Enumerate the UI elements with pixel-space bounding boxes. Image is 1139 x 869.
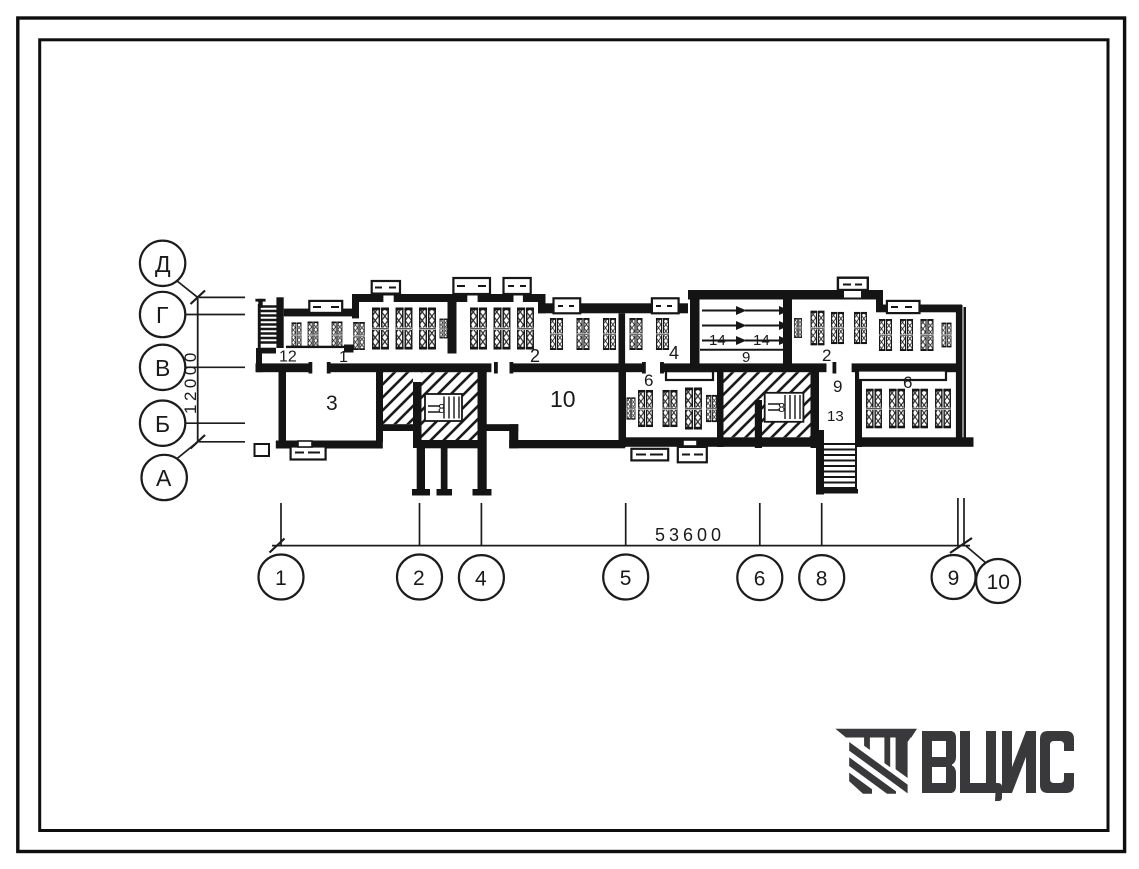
svg-text:4: 4 [475,568,487,591]
svg-text:12000: 12000 [181,349,200,414]
svg-text:9: 9 [742,349,750,366]
svg-text:53600: 53600 [655,525,725,545]
svg-text:2: 2 [822,346,831,365]
svg-text:8: 8 [816,568,828,591]
svg-text:10: 10 [550,386,576,412]
svg-text:14: 14 [709,332,726,349]
svg-text:9: 9 [948,567,960,590]
svg-text:5: 5 [620,567,632,590]
svg-text:9: 9 [833,377,842,396]
svg-text:Г: Г [156,302,169,328]
svg-text:8: 8 [438,401,445,416]
svg-text:6: 6 [644,371,653,390]
svg-text:12: 12 [279,349,297,366]
svg-text:Д: Д [155,251,171,277]
svg-text:2: 2 [413,567,425,590]
svg-text:13: 13 [827,408,844,425]
svg-text:Б: Б [155,411,170,437]
svg-text:10: 10 [987,571,1010,594]
svg-text:1: 1 [339,349,348,366]
svg-text:6: 6 [903,373,912,392]
svg-text:А: А [156,465,172,491]
svg-text:1: 1 [275,567,287,590]
svg-text:8: 8 [778,400,785,415]
svg-text:2: 2 [530,346,540,366]
svg-text:6: 6 [754,568,766,591]
svg-text:В: В [155,355,170,381]
svg-text:14: 14 [753,332,770,349]
svg-text:3: 3 [326,392,338,415]
svg-text:4: 4 [669,343,679,363]
